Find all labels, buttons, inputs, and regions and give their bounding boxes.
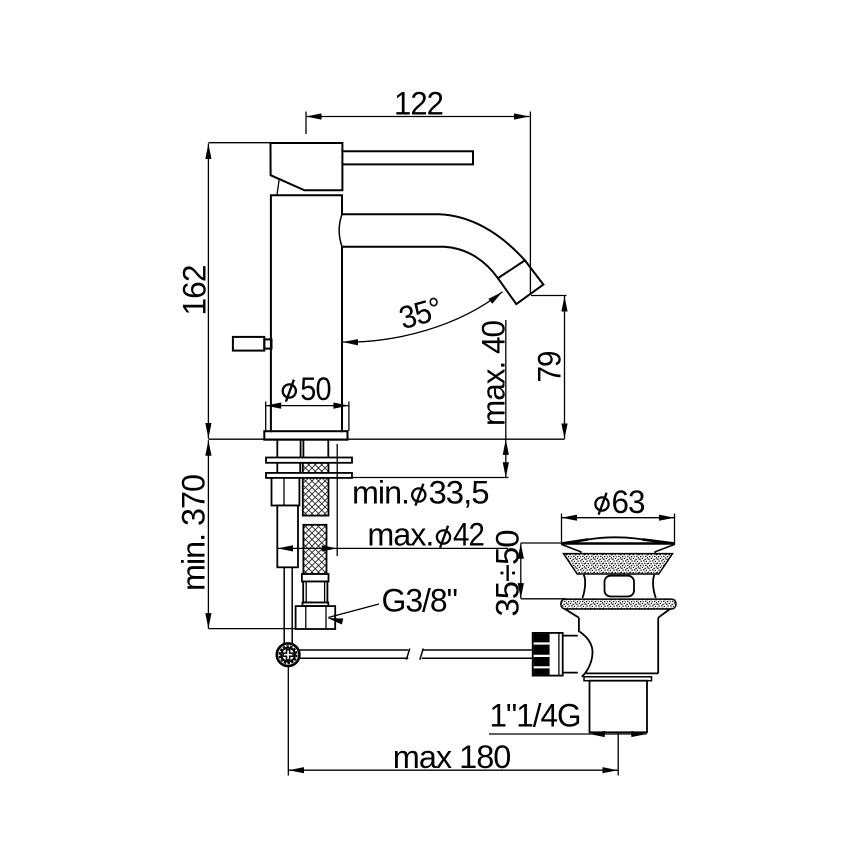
- svg-text:79: 79: [532, 351, 568, 382]
- svg-text:G3/8": G3/8": [382, 583, 458, 619]
- svg-text:max 180: max 180: [393, 739, 511, 775]
- svg-text:1"1/4G: 1"1/4G: [490, 697, 581, 733]
- svg-text:max. 40: max. 40: [476, 321, 512, 426]
- svg-text:min.: min.: [352, 475, 409, 511]
- svg-text:122: 122: [394, 86, 443, 122]
- svg-text:50: 50: [300, 371, 330, 407]
- svg-text:63: 63: [612, 484, 645, 520]
- svg-text:35÷50: 35÷50: [490, 530, 526, 616]
- svg-text:162: 162: [177, 265, 213, 315]
- svg-text:max.: max.: [367, 517, 433, 553]
- svg-text:42: 42: [453, 517, 484, 553]
- svg-text:33,5: 33,5: [429, 475, 489, 511]
- svg-text:min. 370: min. 370: [176, 475, 212, 591]
